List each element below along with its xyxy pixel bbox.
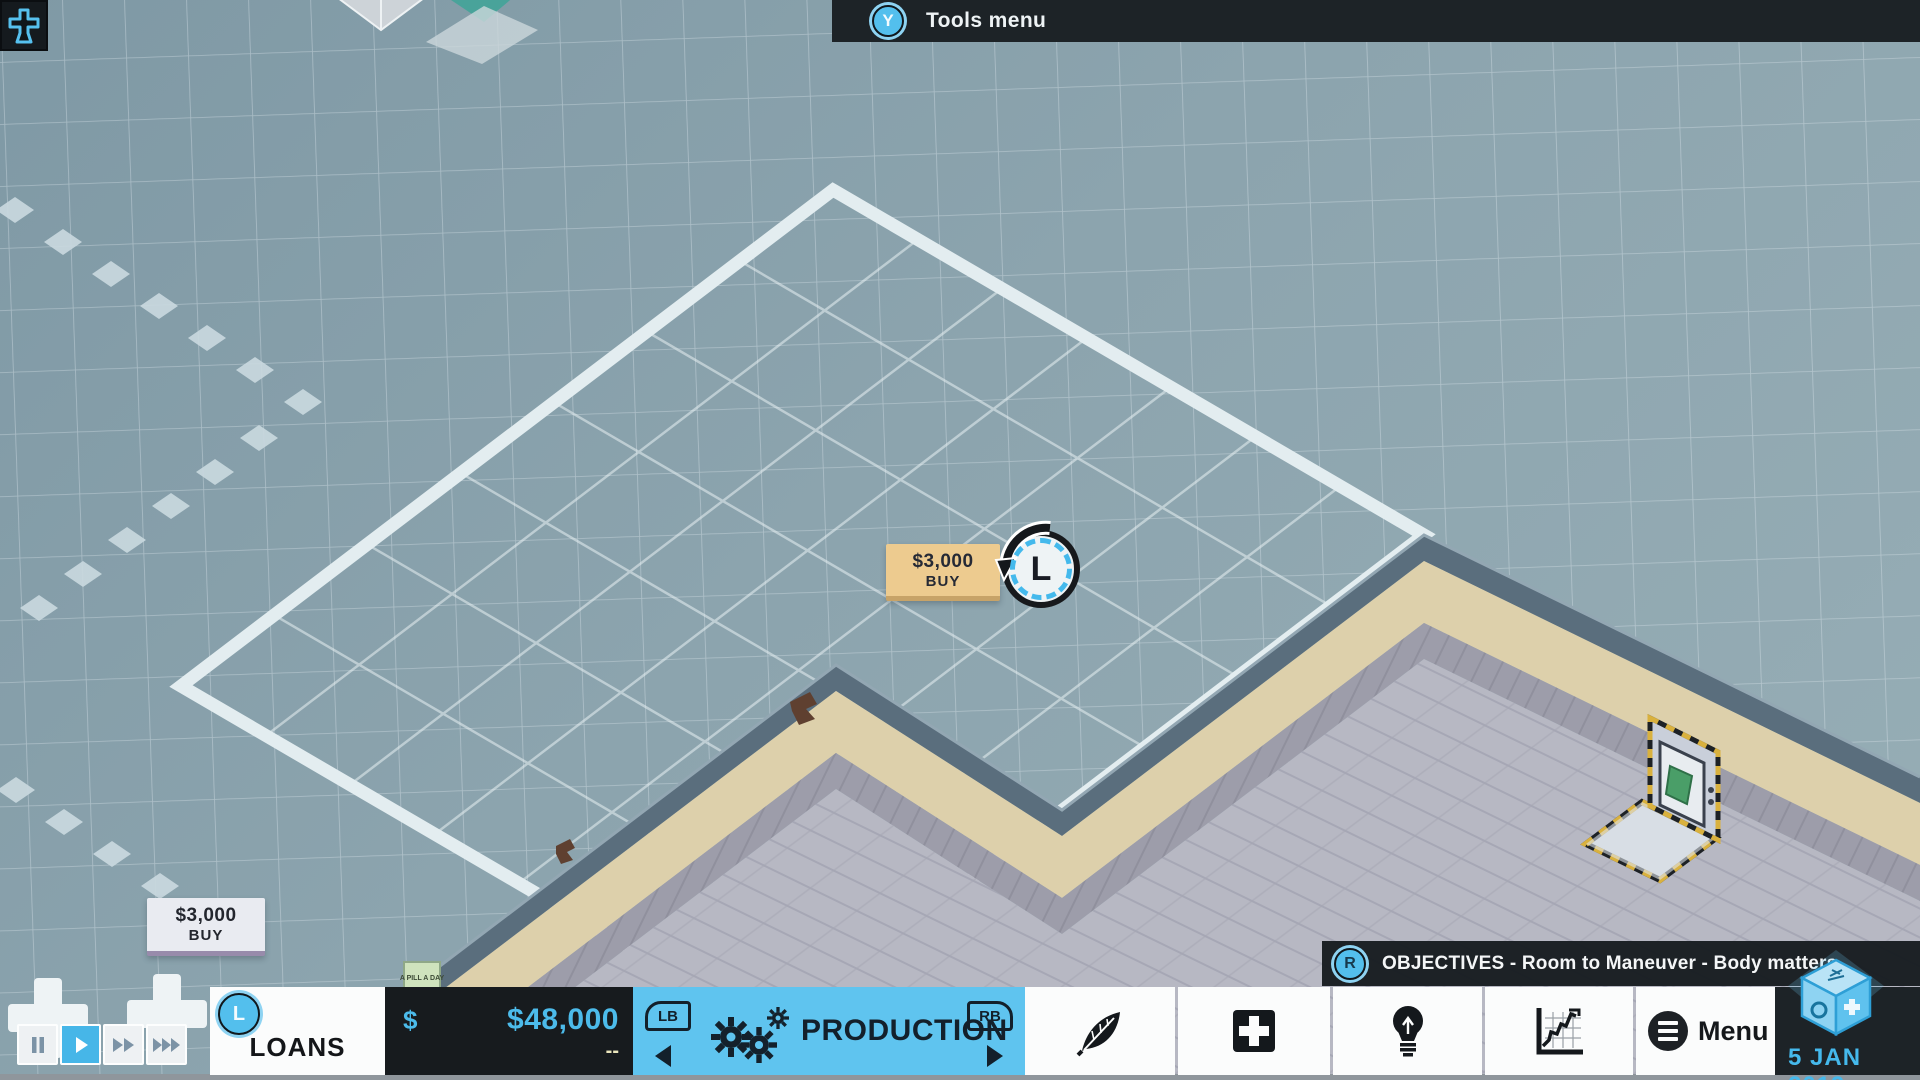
cursor-tool-button[interactable]: [0, 0, 48, 51]
play-button[interactable]: [60, 1024, 101, 1065]
isometric-scene: A PILL A DAY: [0, 0, 1920, 1080]
buy-tooltip[interactable]: $3,000 BUY: [886, 544, 1000, 601]
move-cursor-icon: [7, 7, 41, 45]
fastest-forward-button[interactable]: [146, 1024, 187, 1065]
lb-button-icon: LB: [645, 1001, 691, 1031]
balance-change: --: [606, 1040, 619, 1063]
game-viewport: A PILL A DAY Y Tools menu: [0, 0, 1920, 1080]
buy-price: $3,000: [912, 551, 973, 573]
gears-icon: [711, 1007, 801, 1063]
game-speed-controls: [17, 1024, 187, 1065]
fastest-forward-icon: [152, 1036, 182, 1054]
objectives-label: OBJECTIVES - Room to Maneuver - Body mat…: [1382, 953, 1837, 975]
pause-icon: [29, 1036, 47, 1054]
tools-menu-label: Tools menu: [926, 9, 1046, 33]
date-label: 5 JAN 2019: [1788, 1044, 1920, 1080]
money-panel: $ $48,000 --: [385, 987, 633, 1075]
plus-icon: [1230, 1007, 1278, 1055]
ghost-buy-action-label: BUY: [189, 927, 224, 944]
health-tab[interactable]: [1178, 987, 1330, 1075]
menu-label: Menu: [1698, 987, 1769, 1075]
r-button-icon: R: [1334, 948, 1366, 980]
currency-symbol: $: [403, 1005, 417, 1036]
ghost-buy-button[interactable]: $3,000 BUY: [147, 898, 265, 956]
loans-label: LOANS: [210, 1032, 385, 1063]
loans-panel[interactable]: L LOANS: [210, 987, 385, 1075]
arrow-left-icon[interactable]: [655, 1045, 671, 1067]
research-tab[interactable]: [1333, 987, 1482, 1075]
ghost-buy-price: $3,000: [175, 905, 236, 927]
calendar-dice-cube-icon[interactable]: [1788, 950, 1884, 1046]
play-icon: [72, 1036, 90, 1054]
svg-text:A PILL A DAY: A PILL A DAY: [400, 975, 445, 982]
tools-menu-bar[interactable]: Y Tools menu: [832, 0, 1920, 42]
menu-button[interactable]: Menu: [1636, 987, 1775, 1075]
hamburger-icon: [1648, 1011, 1688, 1051]
leaf-icon: [1074, 1005, 1126, 1057]
environment-tab[interactable]: [1025, 987, 1175, 1075]
y-button-icon: Y: [872, 5, 904, 37]
lightbulb-icon: [1385, 1003, 1431, 1059]
chart-icon: [1533, 1006, 1585, 1056]
production-tab[interactable]: LB PRODUCTION RB: [633, 987, 1025, 1075]
statistics-tab[interactable]: [1485, 987, 1633, 1075]
buy-action-label: BUY: [926, 573, 961, 590]
fast-forward-button[interactable]: [103, 1024, 144, 1065]
rb-button-icon: RB: [967, 1001, 1013, 1031]
l-button-icon: L: [218, 993, 260, 1035]
pause-button[interactable]: [17, 1024, 58, 1065]
arrow-right-icon[interactable]: [987, 1045, 1003, 1067]
balance-value: $48,000: [507, 1003, 619, 1037]
l-stick-button-icon: L: [1002, 530, 1080, 608]
fast-forward-icon: [112, 1036, 136, 1054]
